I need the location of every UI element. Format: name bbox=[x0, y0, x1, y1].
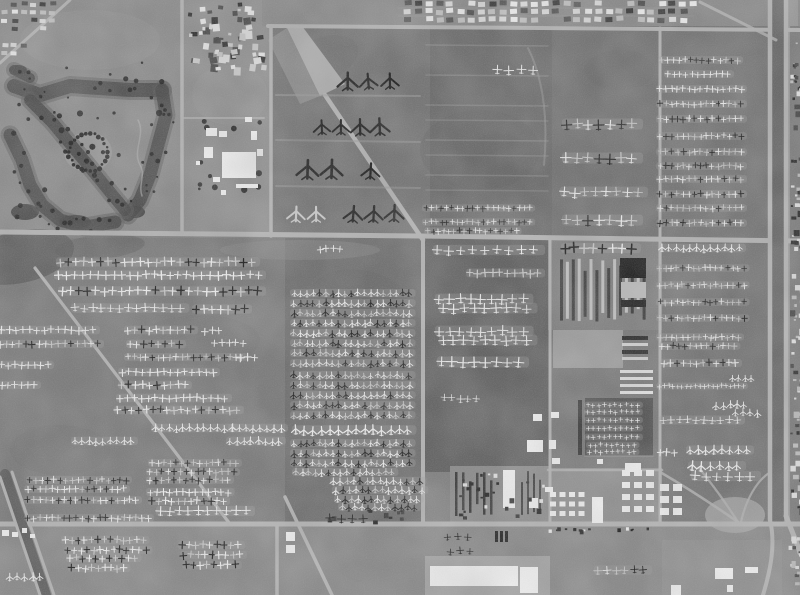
road bbox=[426, 190, 548, 191]
urban-speck bbox=[516, 514, 520, 518]
house bbox=[1, 51, 7, 55]
storage-building bbox=[579, 502, 585, 507]
urban-speck bbox=[252, 52, 256, 57]
urban-speck bbox=[199, 31, 203, 35]
tree-icon bbox=[89, 169, 93, 173]
house bbox=[500, 0, 507, 5]
tree-icon bbox=[26, 70, 30, 74]
storage-bar bbox=[621, 300, 646, 307]
storage-bar bbox=[505, 531, 508, 542]
terrain-blob bbox=[705, 497, 765, 533]
tree-icon bbox=[150, 96, 153, 99]
building bbox=[286, 545, 295, 553]
parking-lane bbox=[290, 439, 416, 447]
urban-speck bbox=[189, 34, 192, 38]
tree-icon bbox=[256, 170, 262, 176]
tree-icon bbox=[108, 89, 111, 92]
building bbox=[2, 530, 9, 536]
tree-icon bbox=[95, 178, 99, 182]
tree-icon bbox=[67, 150, 71, 154]
tree-icon bbox=[59, 140, 62, 143]
urban-speck bbox=[400, 517, 404, 520]
house bbox=[31, 18, 37, 22]
urban-speck bbox=[214, 51, 218, 54]
tree-icon bbox=[202, 119, 207, 124]
urban-speck bbox=[222, 41, 228, 47]
terrain-blob bbox=[220, 240, 380, 260]
building bbox=[257, 149, 263, 156]
house bbox=[647, 10, 654, 15]
storage-stripe bbox=[613, 259, 616, 319]
parking-lane bbox=[146, 468, 240, 476]
tree-icon bbox=[82, 217, 86, 221]
tree-icon bbox=[65, 66, 68, 69]
storage-building bbox=[660, 496, 669, 503]
house bbox=[40, 19, 46, 23]
tree-icon bbox=[63, 149, 67, 153]
urban-speck bbox=[373, 520, 378, 524]
urban-speck bbox=[212, 24, 220, 32]
urban-speck bbox=[208, 53, 213, 58]
urban-speck bbox=[245, 31, 252, 40]
urban-speck bbox=[792, 97, 795, 100]
tree-icon bbox=[26, 189, 30, 193]
terrain-blob bbox=[420, 110, 540, 190]
storage-building bbox=[550, 511, 556, 516]
urban-speck bbox=[794, 105, 800, 110]
storage-stripe bbox=[455, 472, 458, 516]
urban-speck bbox=[228, 33, 231, 36]
urban-speck bbox=[480, 474, 483, 477]
tree-icon bbox=[22, 151, 26, 155]
tree-icon bbox=[68, 141, 73, 146]
urban-speck bbox=[469, 482, 473, 485]
house bbox=[573, 17, 580, 22]
urban-speck bbox=[797, 431, 800, 435]
urban-speck bbox=[790, 433, 792, 435]
tree-icon bbox=[15, 214, 20, 219]
urban-speck bbox=[791, 185, 795, 187]
terrain-patch bbox=[790, 26, 800, 532]
house bbox=[606, 9, 613, 14]
house bbox=[510, 9, 517, 14]
house bbox=[22, 1, 28, 5]
urban-speck bbox=[384, 513, 389, 518]
house bbox=[436, 1, 443, 6]
tree-icon bbox=[42, 187, 47, 192]
tree-icon bbox=[141, 62, 143, 64]
tree-icon bbox=[106, 146, 108, 148]
urban-speck bbox=[496, 482, 499, 485]
urban-speck bbox=[557, 527, 561, 531]
urban-speck bbox=[232, 55, 236, 58]
house bbox=[564, 1, 571, 6]
urban-speck bbox=[791, 489, 794, 492]
tree-icon bbox=[18, 203, 23, 208]
house bbox=[510, 1, 517, 7]
tree-icon bbox=[79, 167, 84, 172]
urban-speck bbox=[794, 241, 798, 244]
urban-speck bbox=[792, 493, 797, 498]
tree-icon bbox=[101, 163, 104, 166]
urban-speck bbox=[243, 17, 251, 25]
tree-icon bbox=[39, 215, 42, 218]
tree-icon bbox=[115, 199, 120, 204]
house bbox=[531, 9, 538, 14]
house bbox=[531, 2, 538, 7]
tree-icon bbox=[93, 169, 97, 173]
tree-icon bbox=[156, 110, 162, 116]
tree-icon bbox=[198, 182, 203, 187]
storage-stripe bbox=[566, 262, 569, 319]
urban-speck bbox=[790, 466, 796, 472]
house bbox=[541, 1, 548, 6]
tree-icon bbox=[212, 184, 218, 190]
house bbox=[595, 0, 602, 5]
urban-speck bbox=[791, 205, 793, 207]
storage-stripe bbox=[462, 472, 465, 510]
urban-speck bbox=[232, 11, 237, 16]
storage-bar bbox=[620, 370, 653, 373]
building bbox=[251, 131, 257, 140]
urban-speck bbox=[793, 379, 796, 381]
house bbox=[681, 8, 688, 13]
storage-stripe bbox=[584, 271, 587, 317]
house bbox=[531, 17, 538, 22]
house bbox=[40, 26, 46, 30]
building bbox=[549, 440, 556, 449]
urban-speck bbox=[792, 561, 796, 565]
house bbox=[511, 17, 518, 22]
storage-stripe bbox=[490, 480, 493, 514]
house bbox=[585, 9, 592, 14]
storage-building bbox=[622, 470, 630, 476]
tree-icon bbox=[102, 142, 105, 145]
terrain-blob bbox=[10, 425, 110, 475]
house bbox=[1, 10, 7, 14]
tree-icon bbox=[53, 111, 56, 114]
storage-stripe bbox=[590, 259, 593, 320]
house bbox=[638, 9, 645, 14]
parking-lane bbox=[586, 442, 640, 449]
house bbox=[467, 10, 474, 16]
house bbox=[11, 3, 17, 7]
tree-icon bbox=[67, 220, 72, 225]
storage-building bbox=[569, 511, 575, 516]
parking-lane bbox=[433, 245, 545, 255]
urban-speck bbox=[239, 33, 246, 41]
tree-icon bbox=[48, 223, 50, 225]
urban-speck bbox=[797, 419, 800, 421]
urban-speck bbox=[794, 160, 797, 163]
house bbox=[21, 10, 27, 14]
building bbox=[221, 190, 226, 195]
building bbox=[430, 566, 518, 586]
house bbox=[49, 18, 55, 22]
urban-speck bbox=[793, 371, 798, 375]
tree-icon bbox=[18, 70, 22, 74]
tree-icon bbox=[160, 104, 164, 108]
urban-speck bbox=[257, 35, 264, 40]
building bbox=[22, 528, 27, 533]
building bbox=[727, 585, 733, 592]
storage-building bbox=[634, 470, 642, 476]
urban-speck bbox=[397, 511, 400, 514]
house bbox=[490, 1, 497, 6]
urban-speck bbox=[261, 65, 267, 71]
storage-bar bbox=[495, 531, 498, 542]
urban-speck bbox=[218, 56, 226, 63]
house bbox=[690, 1, 697, 6]
urban-speck bbox=[790, 80, 793, 83]
storage-bar bbox=[620, 384, 653, 387]
urban-speck bbox=[617, 528, 620, 532]
storage-stripe bbox=[607, 268, 610, 318]
urban-speck bbox=[795, 451, 800, 455]
urban-speck bbox=[231, 65, 236, 70]
urban-speck bbox=[389, 517, 393, 519]
storage-building bbox=[646, 494, 654, 500]
building bbox=[206, 128, 217, 136]
parking-lane bbox=[226, 437, 286, 446]
road bbox=[426, 155, 548, 156]
urban-speck bbox=[795, 81, 797, 83]
house bbox=[638, 17, 645, 22]
house bbox=[595, 9, 602, 14]
storage-stripe bbox=[601, 260, 604, 313]
house bbox=[542, 9, 549, 14]
road bbox=[426, 105, 548, 106]
urban-speck bbox=[218, 5, 223, 9]
tree-icon bbox=[89, 144, 95, 150]
house bbox=[647, 17, 654, 22]
house bbox=[468, 18, 475, 23]
tree-icon bbox=[231, 126, 237, 132]
house bbox=[668, 1, 675, 6]
building bbox=[545, 487, 553, 492]
urban-speck bbox=[459, 495, 462, 497]
urban-speck bbox=[793, 444, 798, 448]
tree-icon bbox=[28, 77, 31, 80]
urban-speck bbox=[463, 516, 467, 519]
house bbox=[478, 17, 485, 22]
house bbox=[627, 1, 634, 6]
urban-speck bbox=[238, 44, 242, 49]
house bbox=[426, 1, 433, 6]
house bbox=[616, 15, 623, 21]
storage-building bbox=[634, 494, 642, 500]
urban-speck bbox=[537, 509, 542, 514]
urban-speck bbox=[494, 474, 498, 478]
house bbox=[2, 43, 8, 47]
tree-icon bbox=[84, 168, 87, 171]
urban-speck bbox=[792, 296, 797, 300]
tree-icon bbox=[72, 163, 76, 167]
urban-speck bbox=[795, 76, 798, 80]
storage-building bbox=[660, 508, 669, 515]
tree-icon bbox=[123, 76, 128, 81]
tree-icon bbox=[105, 150, 109, 154]
satellite-image bbox=[0, 0, 800, 595]
tree-icon bbox=[103, 159, 108, 164]
storage-building bbox=[622, 494, 630, 500]
house bbox=[50, 1, 56, 5]
urban-speck bbox=[463, 479, 465, 481]
building bbox=[552, 458, 560, 464]
house bbox=[436, 10, 443, 15]
urban-speck bbox=[794, 247, 798, 251]
house bbox=[552, 8, 559, 13]
urban-speck bbox=[369, 510, 373, 513]
tree-icon bbox=[156, 176, 158, 178]
storage-building bbox=[579, 511, 585, 516]
tree-icon bbox=[19, 164, 23, 168]
tree-icon bbox=[101, 137, 105, 141]
tree-icon bbox=[62, 220, 67, 225]
urban-speck bbox=[792, 274, 796, 279]
storage-building bbox=[673, 484, 682, 491]
urban-speck bbox=[459, 514, 463, 517]
road bbox=[426, 140, 548, 141]
parking-lane bbox=[656, 148, 747, 156]
building bbox=[527, 440, 543, 452]
tree-icon bbox=[66, 154, 71, 159]
urban-speck bbox=[795, 566, 799, 569]
parking-lane bbox=[656, 298, 750, 306]
urban-speck bbox=[488, 474, 490, 476]
urban-speck bbox=[794, 67, 796, 69]
house bbox=[669, 17, 676, 22]
urban-speck bbox=[795, 424, 799, 427]
urban-speck bbox=[796, 43, 798, 45]
urban-speck bbox=[588, 528, 591, 530]
house bbox=[521, 8, 528, 13]
tree-icon bbox=[93, 86, 97, 90]
tree-icon bbox=[65, 127, 70, 132]
tree-icon bbox=[145, 184, 147, 186]
house bbox=[659, 1, 666, 6]
storage-bar bbox=[621, 282, 646, 298]
urban-speck bbox=[505, 507, 508, 511]
tree-icon bbox=[105, 155, 109, 159]
storage-stripe bbox=[572, 259, 575, 320]
tree-icon bbox=[155, 159, 160, 164]
house bbox=[468, 0, 475, 5]
storage-bar bbox=[500, 531, 503, 542]
house bbox=[680, 18, 687, 23]
house bbox=[426, 8, 433, 13]
storage-building bbox=[560, 492, 566, 497]
urban-speck bbox=[200, 7, 206, 12]
road bbox=[426, 45, 548, 46]
urban-speck bbox=[794, 125, 798, 130]
urban-speck bbox=[647, 528, 649, 531]
urban-speck bbox=[792, 339, 796, 343]
tree-icon bbox=[163, 108, 167, 112]
storage-bar bbox=[622, 350, 648, 354]
storage-stripe bbox=[521, 482, 523, 515]
tree-icon bbox=[109, 181, 113, 185]
tree-icon bbox=[80, 143, 83, 146]
house bbox=[30, 3, 36, 7]
tree-icon bbox=[198, 188, 201, 191]
storage-bar bbox=[622, 336, 648, 340]
house bbox=[668, 9, 675, 14]
storage-stripe bbox=[560, 259, 563, 320]
storage-building bbox=[660, 484, 669, 491]
urban-speck bbox=[793, 475, 799, 479]
house bbox=[478, 9, 485, 14]
road bbox=[276, 95, 420, 96]
urban-speck bbox=[795, 111, 800, 117]
urban-speck bbox=[509, 498, 514, 503]
building bbox=[30, 534, 35, 538]
tree-icon bbox=[167, 113, 171, 117]
urban-speck bbox=[796, 187, 800, 190]
tree-icon bbox=[77, 110, 83, 116]
house bbox=[1, 19, 7, 23]
house bbox=[658, 9, 665, 14]
storage-building bbox=[560, 511, 566, 516]
storage-bar bbox=[622, 357, 648, 360]
tree-icon bbox=[59, 127, 65, 133]
tree-icon bbox=[101, 150, 105, 154]
storage-building bbox=[646, 470, 654, 476]
tree-icon bbox=[164, 151, 168, 155]
house bbox=[573, 9, 580, 14]
house bbox=[520, 17, 527, 22]
tree-icon bbox=[71, 159, 74, 162]
urban-speck bbox=[528, 498, 532, 502]
house bbox=[520, 1, 527, 6]
urban-speck bbox=[332, 516, 336, 521]
parking-lane bbox=[228, 424, 288, 433]
urban-speck bbox=[200, 18, 206, 24]
house bbox=[21, 44, 27, 48]
tree-icon bbox=[50, 208, 55, 213]
tree-icon bbox=[11, 131, 16, 136]
house bbox=[30, 10, 36, 14]
urban-speck bbox=[794, 304, 797, 307]
tree-icon bbox=[67, 96, 69, 98]
tree-icon bbox=[93, 132, 96, 135]
house bbox=[415, 1, 422, 6]
road bbox=[426, 120, 548, 121]
parking-lane bbox=[24, 514, 154, 522]
urban-speck bbox=[626, 527, 629, 530]
storage-stripe bbox=[539, 480, 541, 513]
urban-speck bbox=[203, 43, 210, 50]
tree-icon bbox=[133, 87, 137, 91]
urban-speck bbox=[211, 17, 217, 24]
storage-bar bbox=[622, 343, 648, 346]
building bbox=[236, 184, 258, 188]
house bbox=[499, 16, 506, 21]
urban-speck bbox=[207, 10, 212, 14]
house bbox=[10, 51, 16, 55]
house bbox=[39, 2, 45, 6]
urban-speck bbox=[790, 364, 793, 368]
house bbox=[446, 8, 453, 14]
road bbox=[426, 75, 548, 76]
storage-building bbox=[550, 492, 556, 497]
urban-speck bbox=[789, 546, 793, 550]
tree-icon bbox=[208, 174, 212, 178]
building bbox=[196, 161, 200, 165]
building bbox=[204, 147, 213, 158]
house bbox=[405, 0, 412, 5]
tree-icon bbox=[17, 103, 21, 107]
